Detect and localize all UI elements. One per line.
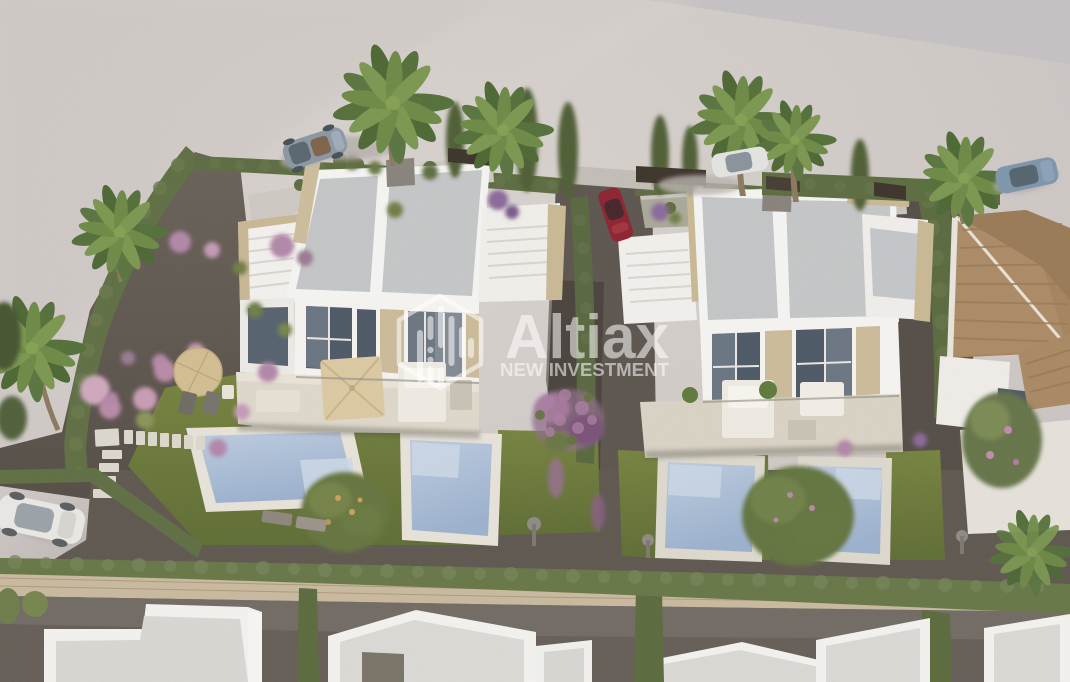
svg-text:NEW INVESTMENT: NEW INVESTMENT [500, 359, 670, 380]
